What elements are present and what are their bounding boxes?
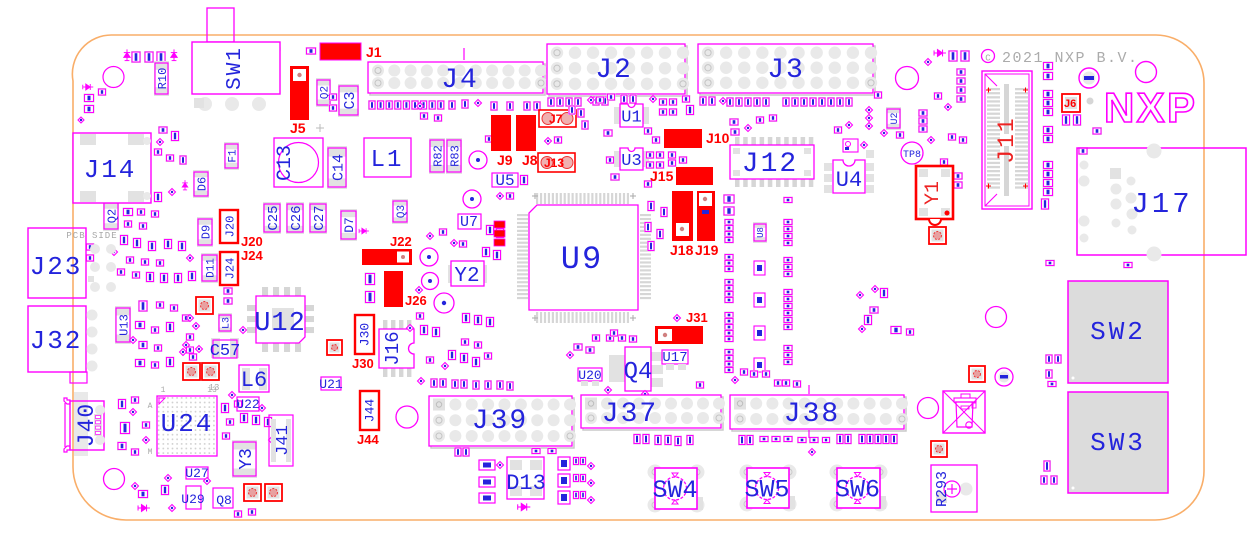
svg-text:U20: U20 [578,368,601,383]
svg-text:J30: J30 [358,323,373,346]
svg-text:J8: J8 [522,152,538,168]
svg-text:U22: U22 [236,397,259,412]
svg-text:M: M [148,448,153,457]
svg-text:U3: U3 [621,152,641,171]
svg-text:SW1: SW1 [224,46,247,90]
svg-text:J9: J9 [497,152,513,168]
svg-text:2021 NXP B.V.: 2021 NXP B.V. [1002,50,1139,67]
svg-text:C25: C25 [266,205,282,230]
svg-text:Q3: Q3 [396,205,408,218]
svg-text:D9: D9 [199,225,213,239]
svg-text:J22: J22 [390,234,412,249]
svg-text:J19: J19 [695,242,719,258]
svg-text:L3: L3 [222,317,233,329]
svg-text:U1: U1 [621,109,641,128]
svg-text:TP8: TP8 [903,150,921,161]
svg-text:R83: R83 [448,145,462,167]
svg-text:U13: U13 [117,314,131,336]
svg-text:U4: U4 [836,168,862,193]
svg-text:J14: J14 [84,155,137,185]
svg-text:13: 13 [209,383,220,393]
svg-text:R82: R82 [431,145,445,167]
svg-text:C57: C57 [210,342,241,361]
svg-text:A: A [148,402,153,411]
svg-text:SW3: SW3 [1090,428,1146,458]
svg-text:J13: J13 [544,156,564,170]
svg-text:J16: J16 [382,331,404,365]
svg-text:J2: J2 [595,55,633,86]
svg-text:J41: J41 [274,425,293,456]
svg-text:C14: C14 [330,154,347,181]
svg-text:SW2: SW2 [1090,317,1146,347]
svg-text:J26: J26 [405,293,427,308]
svg-text:C26: C26 [289,205,305,230]
svg-text:J20: J20 [224,216,238,238]
svg-text:1: 1 [161,386,166,395]
svg-text:U17: U17 [662,350,687,366]
svg-text:U8: U8 [756,227,766,238]
svg-text:J5: J5 [290,120,306,136]
svg-text:D6: D6 [195,177,209,191]
svg-text:SW6: SW6 [835,476,880,505]
svg-text:J32: J32 [30,326,83,356]
svg-text:U2: U2 [890,112,901,124]
svg-text:J24: J24 [224,258,238,280]
svg-text:J10: J10 [706,130,730,146]
svg-text:L6: L6 [241,368,267,393]
svg-text:U5: U5 [495,172,514,190]
svg-text:Y2: Y2 [454,265,479,288]
svg-text:J40: J40 [74,403,100,447]
svg-text:J7: J7 [549,112,563,126]
svg-text:SW4: SW4 [652,476,697,505]
svg-text:C: C [985,54,991,64]
svg-text:R10: R10 [156,68,170,90]
svg-text:C27: C27 [312,205,328,230]
svg-text:NXP: NXP [1104,84,1194,131]
svg-text:J37: J37 [602,399,658,430]
svg-text:U7: U7 [460,214,478,231]
svg-text:Q4: Q4 [624,359,653,386]
svg-text:Y1: Y1 [922,181,945,205]
svg-text:Q2: Q2 [105,209,119,223]
svg-text:U12: U12 [254,309,306,339]
svg-text:C13: C13 [274,145,297,181]
svg-text:R293: R293 [934,471,951,507]
svg-text:L1: L1 [371,147,404,174]
svg-text:J12: J12 [742,149,798,180]
svg-text:SW5: SW5 [744,476,789,505]
svg-text:Q8: Q8 [216,493,232,508]
svg-text:F1: F1 [227,149,239,163]
svg-text:J11: J11 [994,116,1020,163]
svg-text:J4: J4 [441,65,479,96]
svg-text:J44: J44 [357,432,379,447]
svg-text:J38: J38 [784,399,840,430]
svg-text:D11: D11 [205,258,217,278]
svg-text:J6: J6 [1064,98,1076,110]
svg-text:U24: U24 [161,409,214,439]
svg-text:J3: J3 [767,55,805,86]
svg-text:C3: C3 [342,91,359,109]
svg-text:PCB SIDE: PCB SIDE [66,231,117,241]
svg-text:J15: J15 [650,168,674,184]
svg-text:J17: J17 [1131,188,1192,221]
svg-text:J31: J31 [686,310,708,325]
svg-text:U29: U29 [181,492,204,507]
svg-text:J18: J18 [670,242,694,258]
svg-text:J30: J30 [352,356,374,371]
svg-text:J20: J20 [241,234,263,249]
svg-text:J39: J39 [472,406,528,437]
svg-text:Y3: Y3 [237,448,257,470]
svg-text:J1: J1 [366,44,382,60]
svg-text:J23: J23 [30,252,83,282]
svg-text:J44: J44 [363,399,378,423]
svg-text:U9: U9 [561,241,603,278]
svg-text:U21: U21 [319,377,343,392]
svg-text:J24: J24 [241,248,263,263]
svg-text:D7: D7 [342,217,357,233]
svg-text:D13: D13 [506,471,546,496]
